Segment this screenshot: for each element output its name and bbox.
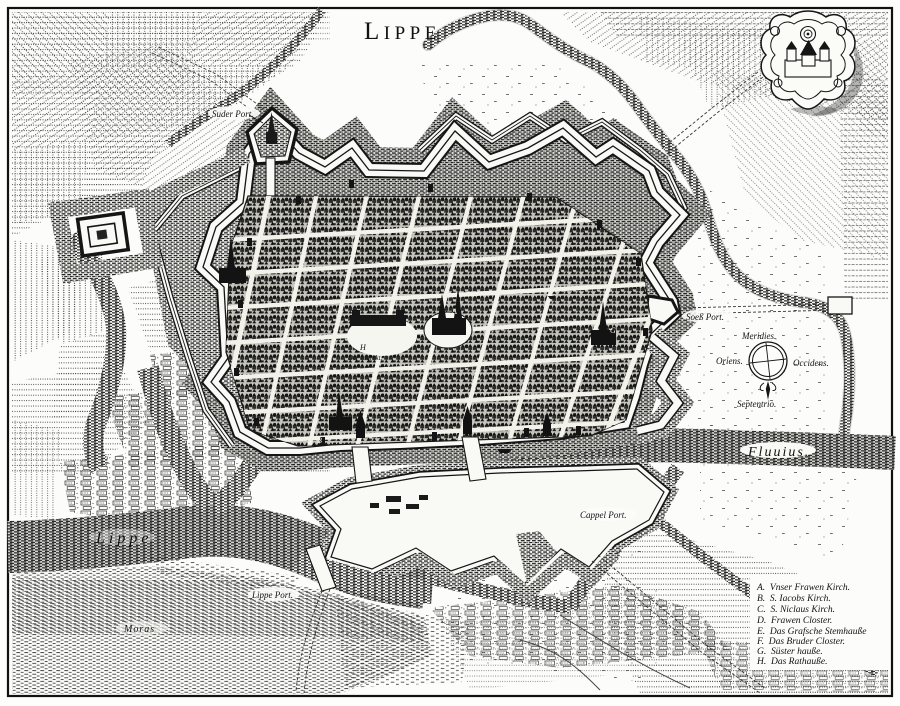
svg-text:Fluuius.: Fluuius. bbox=[747, 445, 810, 460]
svg-text:Oriens.: Oriens. bbox=[716, 356, 743, 366]
svg-text:A: A bbox=[451, 307, 457, 316]
svg-text:E. Das Grafsche Stemhauße: E. Das Grafsche Stemhauße bbox=[756, 626, 867, 637]
svg-text:B: B bbox=[317, 436, 322, 445]
svg-text:F. Das Bruder Closter.: F. Das Bruder Closter. bbox=[756, 637, 845, 647]
svg-text:Suder Port.: Suder Port. bbox=[212, 109, 254, 119]
svg-text:E: E bbox=[583, 384, 589, 393]
svg-text:C. S. Niclaus Kirch.: C. S. Niclaus Kirch. bbox=[757, 605, 835, 615]
svg-text:G. Süster hauße.: G. Süster hauße. bbox=[757, 646, 823, 657]
svg-text:Lippe: Lippe bbox=[95, 530, 152, 547]
svg-text:Soeß Port.: Soeß Port. bbox=[686, 312, 724, 322]
svg-text:Meridies.: Meridies. bbox=[741, 331, 776, 341]
svg-text:Moras: Moras bbox=[123, 624, 155, 635]
svg-text:Septentrio.: Septentrio. bbox=[737, 399, 776, 409]
svg-text:G: G bbox=[610, 326, 616, 335]
svg-text:B. S. Iacobs Kirch.: B. S. Iacobs Kirch. bbox=[757, 594, 831, 604]
svg-text:Cappel Port.: Cappel Port. bbox=[580, 510, 627, 520]
svg-text:LIPPE: LIPPE bbox=[364, 18, 441, 45]
svg-text:Occidens.: Occidens. bbox=[793, 358, 829, 368]
svg-text:Der Marckt.: Der Marckt. bbox=[347, 354, 383, 362]
svg-text:D. Frawen Closter.: D. Frawen Closter. bbox=[756, 616, 832, 626]
svg-text:Lippe Port.: Lippe Port. bbox=[251, 590, 293, 600]
svg-text:A. Vnser Frawen Kirch.: A. Vnser Frawen Kirch. bbox=[756, 583, 850, 593]
svg-text:D: D bbox=[548, 409, 555, 418]
svg-text:H. Das Rathauße.: H. Das Rathauße. bbox=[756, 656, 827, 667]
